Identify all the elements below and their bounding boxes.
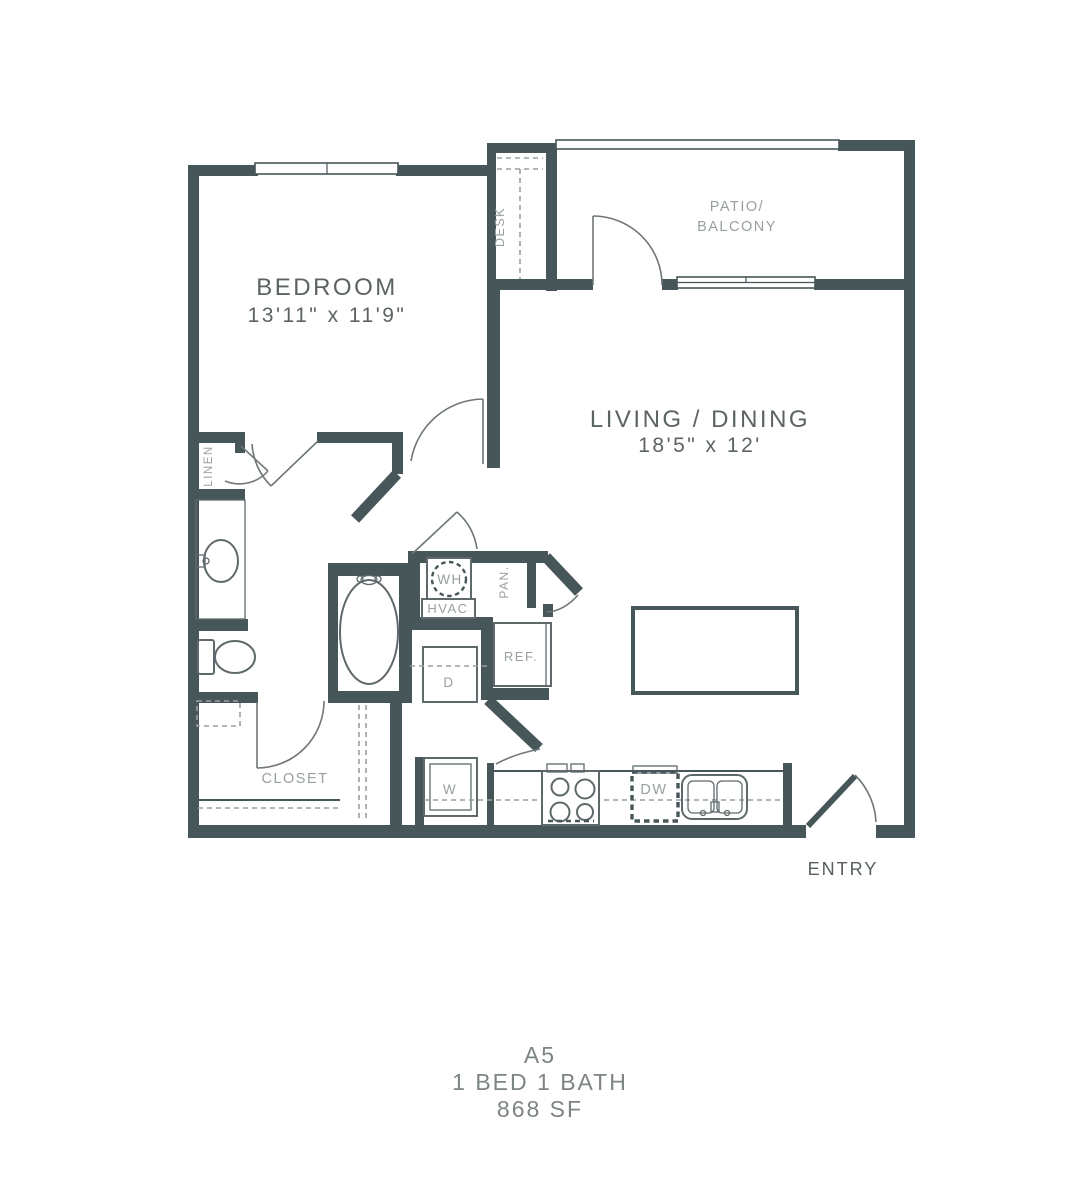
wall-angled-pantry — [546, 557, 579, 592]
wall-angled-kitchen — [488, 700, 539, 748]
hvac-label: HVAC — [427, 601, 468, 616]
linen-label: LINEN — [203, 445, 215, 486]
wall-tub-bottom — [328, 691, 412, 703]
wall-counter-right-end — [783, 763, 792, 825]
patio-door — [593, 216, 662, 285]
wall-patio-top-right — [838, 140, 915, 151]
desk-label: DESK — [493, 207, 507, 247]
patio-label-line2: BALCONY — [697, 219, 777, 235]
wall-angled-bath — [355, 474, 397, 519]
living-label: LIVING / DINING — [590, 406, 810, 433]
wall-stub-bedroom-door — [392, 443, 403, 474]
bedroom-dims: 13'11" x 11'9" — [248, 304, 407, 327]
dryer-label: D — [443, 675, 454, 690]
wall-bottom-right — [876, 825, 915, 838]
living-dims: 18'5" x 12' — [638, 434, 762, 457]
sink-basin-left — [688, 781, 714, 813]
wall-patio-divider-right — [814, 279, 904, 290]
bedroom-label: BEDROOM — [256, 274, 398, 301]
wall-pantry-right — [527, 558, 536, 608]
closet-label: CLOSET — [261, 771, 328, 787]
wall-bottom-left — [188, 825, 806, 838]
wall-right — [904, 140, 915, 838]
walls-layer — [188, 140, 915, 838]
patio-label-line1: PATIO/ — [710, 199, 764, 215]
sink-basin-right — [717, 781, 742, 813]
wall-bedroom-south-left — [188, 432, 245, 443]
dishwasher-label: DW — [640, 782, 667, 798]
hall-door — [412, 512, 477, 554]
wall-left — [188, 165, 199, 837]
bathtub — [340, 580, 398, 684]
wall-linen-bottom — [188, 489, 245, 500]
wall-patio-divider-left — [487, 279, 593, 290]
bedroom-door — [411, 399, 483, 464]
wall-vanity-bottom — [188, 619, 248, 631]
bathroom-door — [252, 441, 318, 486]
pantry-label: PAN. — [497, 565, 511, 598]
entry-label: ENTRY — [808, 859, 879, 879]
unit-name: A5 — [524, 1042, 556, 1068]
wall-bedroom-top-left — [188, 165, 258, 176]
wall-bedroom-south-right — [317, 432, 403, 443]
wall-pantry-stub — [543, 604, 553, 617]
wall-bedroom-living-divider — [487, 290, 500, 468]
wall-washer-stub — [415, 757, 424, 825]
water-heater-label: WH — [437, 572, 463, 587]
floor-plan-page: BEDROOM 13'11" x 11'9" LIVING / DINING 1… — [0, 0, 1076, 1188]
kitchen-island — [633, 608, 797, 693]
linen-door — [225, 446, 268, 484]
wall-ref-left — [481, 617, 493, 700]
wall-bedroom-top-right — [396, 165, 490, 176]
kitchen-door — [496, 749, 540, 764]
closet-shelf-box — [197, 701, 240, 726]
wall-tub-left — [328, 563, 338, 703]
refrigerator-label: REF. — [504, 649, 538, 664]
entry-door — [808, 775, 876, 826]
unit-config: 1 BED 1 BATH — [452, 1069, 628, 1095]
tub-knob — [357, 576, 363, 582]
wall-desk-right — [546, 143, 557, 291]
wall-patio-divider-mid — [662, 279, 678, 290]
toilet-tank — [198, 640, 214, 674]
closet-door — [257, 701, 324, 768]
wall-counter-left-end — [487, 763, 494, 825]
floor-plan-drawing: BEDROOM 13'11" x 11'9" LIVING / DINING 1… — [0, 0, 1076, 1188]
toilet-bowl — [215, 641, 255, 673]
unit-area: 868 SF — [497, 1096, 583, 1122]
tub-knob — [375, 576, 381, 582]
wall-closet-back — [390, 703, 402, 825]
washer-label: W — [443, 782, 457, 797]
patio-railing — [556, 140, 839, 149]
